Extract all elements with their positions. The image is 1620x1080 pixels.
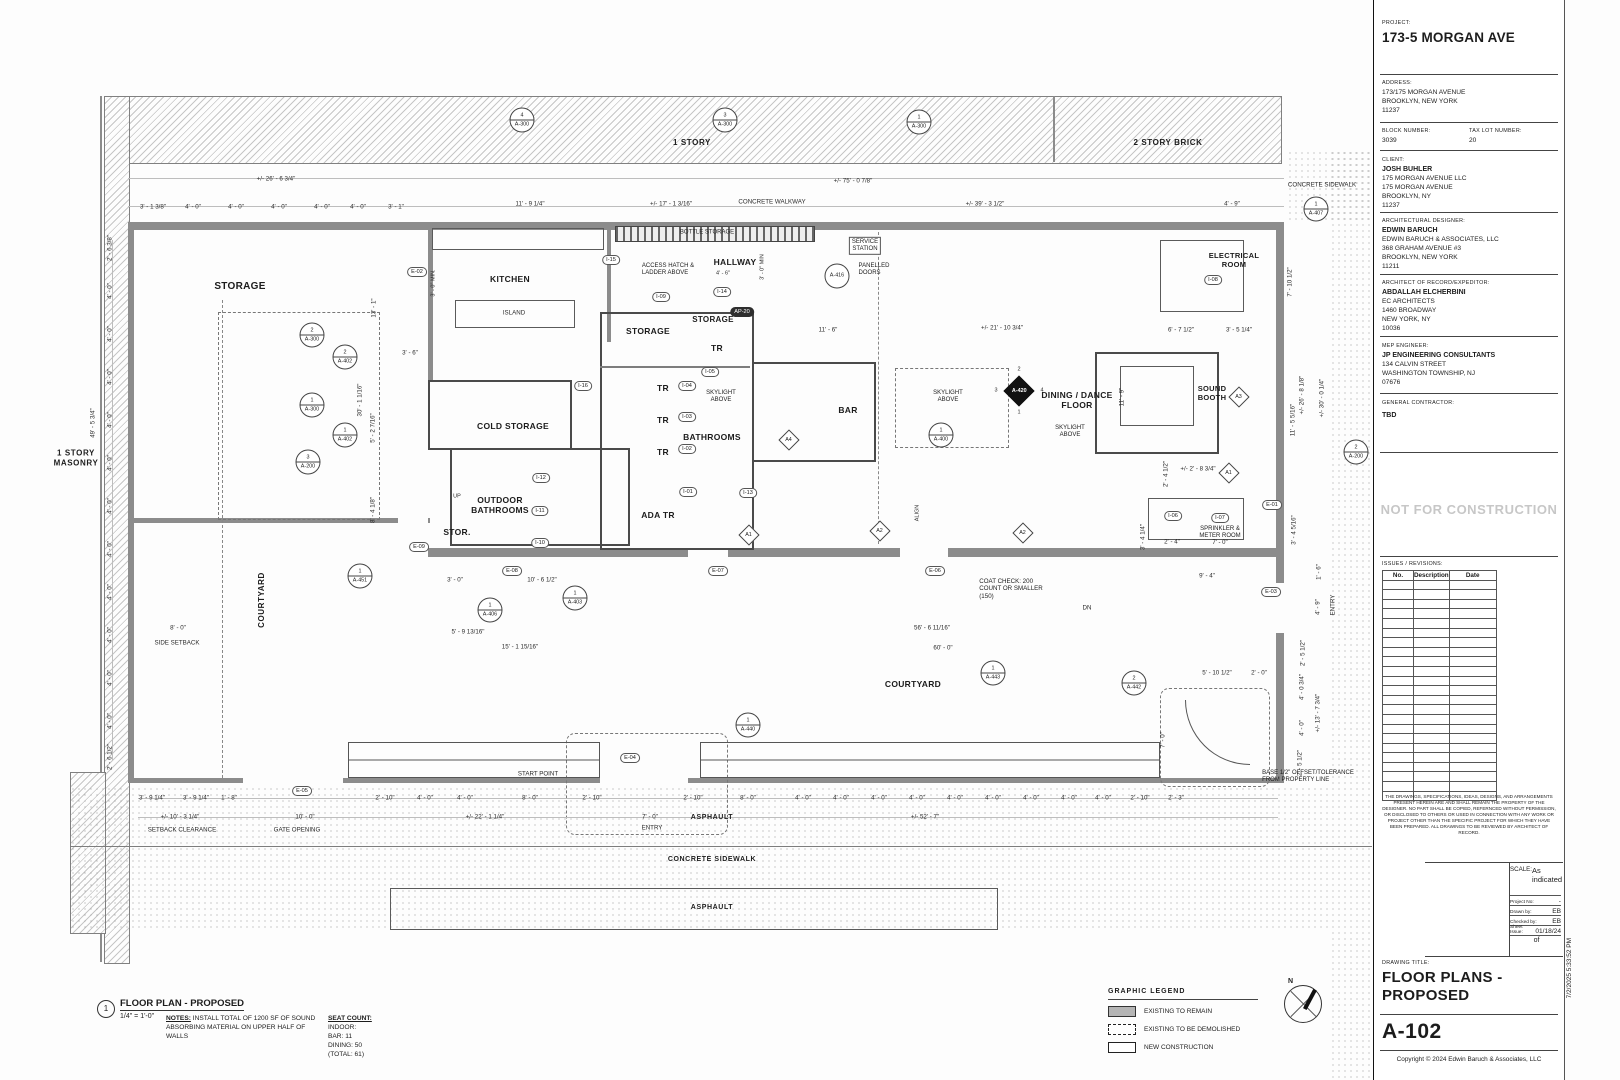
revision-cell — [1449, 590, 1496, 600]
item-tag: E-06 — [925, 566, 945, 576]
room-label: COLD STORAGE — [477, 421, 549, 431]
revision-cell — [1414, 618, 1450, 628]
dimension-label: 4' - 0" — [947, 794, 963, 801]
item-tag: E-01 — [1262, 500, 1282, 510]
dimension-label: +/- 13' - 7 3/4" — [1314, 694, 1321, 733]
dimension-label: 5' - 9 13/16" — [452, 628, 485, 635]
keynote-diamond: A3 — [1228, 386, 1249, 407]
dimension-label: 4' - 0" — [106, 326, 113, 342]
north-label: N — [1288, 978, 1293, 985]
marker-number: 1 — [908, 115, 931, 123]
revision-cell — [1449, 618, 1496, 628]
callout-marker: 1A-443 — [981, 661, 1006, 686]
rev-col-description: Description — [1414, 571, 1450, 581]
field-value: 01/18/24 — [1535, 928, 1561, 935]
room-label: OUTDOOR BATHROOMS — [471, 495, 529, 515]
item-tag: I-03 — [678, 412, 696, 422]
legend-item: EXISTING TO BE DEMOLISHED — [1108, 1024, 1258, 1035]
dimension-label: 5' - 10 1/2" — [1202, 669, 1232, 676]
revision-row-empty — [1383, 647, 1497, 657]
room-label: ADA TR — [641, 510, 675, 520]
keynote-diamond: A1 — [1218, 462, 1239, 483]
item-tag: E-08 — [502, 566, 522, 576]
revision-cell — [1414, 599, 1450, 609]
dimension-label: 4' - 0" — [106, 455, 113, 471]
revision-cell — [1383, 647, 1414, 657]
room-label: STORAGE — [626, 326, 670, 336]
item-tag: E-07 — [708, 566, 728, 576]
item-tag: I-01 — [679, 487, 697, 497]
callout-marker: 3A-200 — [296, 450, 321, 475]
revision-row-empty — [1383, 705, 1497, 715]
block-number-label: BLOCK NUMBER: — [1382, 128, 1462, 134]
of-label: of — [1510, 937, 1563, 944]
plot-timestamp: 7/2/2025 5:33:52 PM — [1566, 938, 1573, 998]
revision-cell — [1449, 676, 1496, 686]
dimension-label: 4' - 0" — [417, 794, 433, 801]
dimension-label: +/- 75' - 0 7/8" — [834, 177, 873, 184]
revision-row-empty — [1383, 676, 1497, 686]
client-details: 175 MORGAN AVENUE LLC 175 MORGAN AVENUE … — [1382, 175, 1556, 211]
revision-cell — [1449, 753, 1496, 763]
drawing-title: FLOOR PLANS - PROPOSED — [1382, 969, 1556, 1006]
annotation-note: SPRINKLER & METER ROOM 7' - 0" — [1199, 526, 1240, 548]
sound-booth-desk — [1120, 366, 1194, 426]
revision-cell — [1383, 734, 1414, 744]
plan-notes: NOTES: INSTALL TOTAL OF 1200 SF OF SOUND… — [166, 1015, 316, 1042]
revision-cell — [1414, 734, 1450, 744]
room-label: ELECTRICAL ROOM — [1209, 251, 1260, 269]
swatch-existing-to-remain — [1108, 1006, 1136, 1017]
legend-item-label: EXISTING TO REMAIN — [1144, 1008, 1212, 1015]
dimension-label: 3' - 9 1/4" — [183, 794, 209, 801]
item-tag: AP-20 — [730, 307, 754, 317]
gc-label: GENERAL CONTRACTOR: — [1382, 400, 1556, 406]
dimension-label: DN — [1083, 604, 1092, 611]
door-opening — [900, 546, 948, 560]
revision-cell — [1449, 724, 1496, 734]
dimension-label: 4' - 0" — [106, 627, 113, 643]
diamond-text: A1 — [1226, 470, 1233, 476]
dimension-label: 2' - 6 1/2" — [106, 744, 113, 770]
dimension-line — [128, 206, 1284, 207]
revision-row-empty — [1383, 609, 1497, 619]
designer-details: EDWIN BARUCH & ASSOCIATES, LLC 368 GRAHA… — [1382, 236, 1556, 272]
diamond-text: A2 — [1020, 530, 1027, 536]
callout-marker: 3A-300 — [713, 108, 738, 133]
marker-sheet-ref: A-440 — [737, 726, 760, 733]
revision-cell — [1449, 647, 1496, 657]
dimension-label: 4' - 0" — [1095, 794, 1111, 801]
revision-cell — [1414, 666, 1450, 676]
revision-cell — [1383, 666, 1414, 676]
dimension-label: 4' - 0" — [985, 794, 1001, 801]
marker-number: 4 — [511, 113, 534, 121]
site-label: ASPHAULT — [691, 904, 733, 912]
marker-number: 2 — [301, 328, 324, 336]
revision-cell — [1383, 676, 1414, 686]
revision-cell — [1449, 686, 1496, 696]
keynote-diamond: A2 — [1012, 522, 1033, 543]
room-label: TR — [711, 343, 723, 353]
dimension-label: 5' - 2 7/16" — [369, 413, 376, 443]
north-arrow-icon — [1284, 985, 1322, 1023]
callout-marker: A-416 — [825, 264, 850, 289]
site-label: COURTYARD — [257, 572, 267, 628]
view-number-bubble: 1 — [97, 1000, 115, 1018]
marker-number: 2 — [1345, 445, 1368, 453]
courtyard-storage-boxes — [700, 742, 1160, 778]
revision-cell — [1414, 580, 1450, 590]
revision-row-empty — [1383, 666, 1497, 676]
dimension-label: 6' - 7 1/2" — [1168, 326, 1194, 333]
callout-marker: 2A-442 — [1122, 671, 1147, 696]
marker-number: 1 — [301, 398, 324, 406]
revision-cell — [1383, 657, 1414, 667]
item-tag: I-13 — [739, 488, 757, 498]
dimension-label: 60' - 0" — [933, 644, 952, 651]
dimension-label: 11' - 9 1/4" — [515, 200, 544, 207]
item-tag: I-07 — [1211, 513, 1229, 523]
item-tag: I-14 — [713, 287, 731, 297]
marker-sheet-ref: A-442 — [1123, 684, 1146, 691]
dimension-label: 10' - 6 1/2" — [527, 576, 557, 583]
marker-sheet-ref: A-451 — [349, 577, 372, 584]
dimension-label: 3' - 1 3/8" — [140, 203, 166, 210]
dimension-label: 4' - 0" — [106, 369, 113, 385]
revisions-header-row: No. Description Date — [1383, 571, 1497, 581]
dimension-label: +/- 26' - 6 3/4" — [257, 175, 296, 182]
dimension-label: 4' - 0" — [833, 794, 849, 801]
dimension-label: 2' - 6 3/8" — [106, 235, 113, 261]
dimension-label: 4' - 0" — [314, 203, 330, 210]
callout-marker: 2A-402 — [333, 345, 358, 370]
divider — [1380, 336, 1558, 337]
revision-cell — [1383, 762, 1414, 772]
callout-marker: 1A-451 — [348, 564, 373, 589]
revision-cell — [1449, 628, 1496, 638]
item-tag: E-02 — [407, 267, 427, 277]
sheet-number: A-102 — [1382, 1020, 1556, 1044]
room-label: HALLWAY — [714, 257, 757, 267]
dimension-label: 2 — [1017, 367, 1020, 374]
dimension-label: 4' - 0" — [106, 541, 113, 557]
dimension-label: 2' - 0" — [1251, 669, 1267, 676]
room-label: BAR — [838, 405, 857, 415]
callout-marker: 1A-300 — [907, 110, 932, 135]
room-label: TR — [657, 447, 669, 457]
seat-count-body: INDOOR: BAR: 11 DINING: 50 (TOTAL: 61) — [328, 1024, 478, 1060]
revision-cell — [1414, 714, 1450, 724]
site-label: 1 STORY MASONRY — [54, 448, 99, 467]
seat-count-heading: SEAT COUNT: — [328, 1015, 372, 1022]
divider — [1380, 1014, 1558, 1015]
revision-cell — [1449, 762, 1496, 772]
room-label: STORAGE — [214, 281, 265, 293]
dimension-label: START POINT — [518, 770, 558, 777]
dimension-label: BOTTLE STORAGE — [680, 229, 734, 236]
revision-cell — [1449, 609, 1496, 619]
revision-cell — [1449, 599, 1496, 609]
diamond-text: A2 — [877, 528, 884, 534]
dimension-label: 4' - 0" — [795, 794, 811, 801]
dimension-label: +/- 22' - 1 1/4" — [466, 813, 505, 820]
marker-sheet-ref: A-200 — [1345, 453, 1368, 460]
dimension-label: 7' - 10 1/2" — [1286, 267, 1293, 297]
dimension-label: CONCRETE WALKWAY — [738, 198, 805, 205]
dimension-label: 15' - 1 15/16" — [502, 643, 538, 650]
revision-cell — [1449, 657, 1496, 667]
dimension-label: UP — [453, 494, 461, 501]
dimension-line — [128, 178, 1284, 179]
revision-cell — [1414, 772, 1450, 782]
marker-number: 1 — [334, 428, 357, 436]
dimension-label: 4' - 0" — [909, 794, 925, 801]
neighbor-building-north-hatch — [128, 96, 1282, 164]
site-label: 2 STORY BRICK — [1134, 138, 1203, 148]
item-tag: I-06 — [1164, 511, 1182, 521]
marker-sheet-ref: A-402 — [334, 436, 357, 443]
revision-row-empty — [1383, 618, 1497, 628]
dimension-label: 3' - 4 5/16" — [1290, 515, 1297, 545]
revision-cell — [1449, 772, 1496, 782]
revision-cell — [1383, 772, 1414, 782]
marker-sheet-ref: A-300 — [301, 336, 324, 343]
dimension-label: 3' - 5 1/4" — [1226, 326, 1252, 333]
room-label: DINING / DANCE FLOOR — [1041, 390, 1112, 410]
revision-row-empty — [1383, 724, 1497, 734]
dimension-label: 2' - 10" — [582, 794, 601, 801]
not-for-construction-watermark: NOT FOR CONSTRUCTION — [1374, 502, 1564, 517]
dimension-label: 8' - 0" — [522, 794, 538, 801]
dimension-label: 4' - 0" — [106, 584, 113, 600]
dimension-label: 10' - 0" — [295, 813, 314, 820]
annotation-note: COAT CHECK: 200 COUNT OR SMALLER (150) — [979, 578, 1043, 600]
revision-cell — [1383, 609, 1414, 619]
revision-cell — [1383, 743, 1414, 753]
dimension-label: SIDE SETBACK — [154, 639, 199, 646]
callout-marker: 1A-440 — [736, 713, 761, 738]
marker-sheet-ref: A-407 — [1305, 210, 1328, 217]
revision-row-empty — [1383, 590, 1497, 600]
legend-item-label: NEW CONSTRUCTION — [1144, 1044, 1213, 1051]
address-label: ADDRESS: — [1382, 80, 1556, 86]
scale-label: SCALE: — [1510, 863, 1532, 873]
item-tag: E-05 — [292, 786, 312, 796]
dimension-label: 3' - 9 1/4" — [139, 794, 165, 801]
item-tag: I-12 — [532, 473, 550, 483]
kitchen-counter — [432, 228, 604, 250]
dimension-label: 4' - 9" — [1314, 599, 1321, 615]
architect-name: ABDALLAH ELCHERBINI — [1382, 289, 1556, 296]
exterior-wall-east — [1276, 222, 1284, 583]
marker-sheet-ref: A-402 — [334, 358, 357, 365]
dimension-label: 4' - 0" — [106, 283, 113, 299]
marker-number: 2 — [334, 350, 357, 358]
marker-sheet-ref: A-300 — [908, 123, 931, 130]
swatch-new-construction — [1108, 1042, 1136, 1053]
dimension-label: 11' - 9" — [1118, 388, 1125, 407]
callout-marker: 1A-400 — [929, 423, 954, 448]
dimension-label: 4' - 0" — [106, 412, 113, 428]
divider — [1380, 452, 1558, 453]
revision-cell — [1383, 724, 1414, 734]
revisions-label: ISSUES / REVISIONS: — [1382, 561, 1556, 567]
room-label: BATHROOMS — [683, 432, 741, 442]
revision-row-empty — [1383, 686, 1497, 696]
revision-cell — [1414, 628, 1450, 638]
sidewalk-edge-line — [70, 846, 1372, 847]
courtyard-storage-boxes — [348, 742, 600, 778]
dimension-label: SETBACK CLEARANCE — [148, 826, 216, 833]
revision-row-empty — [1383, 714, 1497, 724]
callout-marker: 1A-402 — [333, 423, 358, 448]
revision-cell — [1383, 753, 1414, 763]
revision-cell — [1383, 686, 1414, 696]
dimension-label: 2' - 10" — [683, 794, 702, 801]
revision-cell — [1383, 599, 1414, 609]
marker-sheet-ref: A-443 — [982, 674, 1005, 681]
revision-row-empty — [1383, 599, 1497, 609]
field-value: EB — [1552, 918, 1561, 925]
dimension-label: 4' - 0" — [1023, 794, 1039, 801]
revision-row-empty — [1383, 772, 1497, 782]
mep-label: MEP ENGINEER: — [1382, 343, 1556, 349]
dimension-label: 4' - 0" — [271, 203, 287, 210]
dimension-label: 56' - 6 11/16" — [914, 624, 950, 631]
divider — [1380, 1050, 1558, 1051]
seat-count: SEAT COUNT: INDOOR: BAR: 11 DINING: 50 (… — [328, 1015, 478, 1059]
dimension-label: 4 — [1040, 388, 1043, 395]
dimension-label: 3' - 0" — [447, 576, 463, 583]
revision-cell — [1383, 638, 1414, 648]
dimension-label: 4' - 0" — [185, 203, 201, 210]
annotation-note: ACCESS HATCH & LADDER ABOVE — [642, 263, 694, 277]
marker-number: 1 — [930, 428, 953, 436]
dimension-label: 4' - 0" — [1298, 720, 1305, 736]
view-title: FLOOR PLAN - PROPOSED — [120, 998, 244, 1011]
dimension-label: 2' - 4 1/2" — [1162, 461, 1169, 487]
dimension-label: +/- 39' - 3 1/2" — [966, 200, 1005, 207]
marker-sheet-ref: A-406 — [479, 611, 502, 618]
marker-number: 1 — [982, 666, 1005, 674]
room-label: TR — [657, 415, 669, 425]
dimension-label: 1' - 8" — [221, 794, 237, 801]
dimension-label: 4' - 6" — [716, 271, 730, 278]
revision-cell — [1449, 782, 1496, 792]
dimension-label: 9' - 4" — [1199, 572, 1215, 579]
dimension-label: 4' - 9" — [1224, 200, 1240, 207]
dimension-label: +/- 30' - 0 1/4" — [1318, 379, 1325, 418]
dimension-label: 1' - 6" — [1315, 564, 1322, 580]
dimension-label: ALIGN — [915, 505, 922, 522]
dimension-label: 3' - 0" MIN — [760, 254, 767, 280]
divider — [1380, 150, 1558, 151]
dimension-label: 30' - 1 1/16" — [356, 384, 363, 417]
client-label: CLIENT: — [1382, 157, 1556, 163]
room-label: STOR. — [443, 527, 470, 537]
dimension-label: ISLAND — [503, 309, 525, 316]
divider — [1380, 74, 1558, 75]
dimension-label: 2' - 4" — [1164, 538, 1180, 545]
setback-line — [222, 300, 224, 778]
callout-marker: 1A-407 — [1304, 197, 1329, 222]
revision-row-empty — [1383, 782, 1497, 792]
dimension-label: 3' - 1" — [388, 203, 404, 210]
dimension-label: ENTRY — [642, 824, 663, 831]
dimension-label: 3' - 6" — [402, 349, 418, 356]
dimension-label: +/- 21' - 10 3/4" — [981, 324, 1023, 331]
rev-col-no: No. — [1383, 571, 1414, 581]
revision-cell — [1414, 753, 1450, 763]
field-value: EB — [1552, 908, 1561, 915]
item-tag: I-16 — [574, 381, 592, 391]
dimension-label: 4' - 0" — [350, 203, 366, 210]
architect-details: EC ARCHITECTS 1460 BROADWAY NEW YORK, NY… — [1382, 298, 1556, 334]
marker-sheet-ref: A-300 — [511, 121, 534, 128]
annotation-note: SERVICE STATION — [849, 237, 881, 255]
marker-number: 1 — [737, 718, 760, 726]
demolition-line — [878, 232, 880, 544]
revision-cell — [1414, 638, 1450, 648]
revision-cell — [1414, 762, 1450, 772]
callout-marker: 4A-300 — [510, 108, 535, 133]
neighbor-divider-wall — [1053, 96, 1055, 162]
dimension-label: 4' - 0" — [106, 498, 113, 514]
dimension-label: 11' - 5 5/16" — [1289, 404, 1296, 437]
dimension-label: 4' - 0" — [228, 203, 244, 210]
dimension-label: CONCRETE SIDEWALK — [1288, 181, 1356, 188]
diamond-text: A3 — [1236, 394, 1243, 400]
room-label: KITCHEN — [490, 274, 530, 284]
diamond-text: A4 — [786, 437, 793, 443]
item-tag: I-02 — [678, 444, 696, 454]
door-opening — [398, 516, 428, 526]
view-scale: 1/4" = 1'-0" — [120, 1013, 154, 1020]
dimension-label: +/- 10' - 3 1/4" — [161, 813, 200, 820]
revision-cell — [1414, 743, 1450, 753]
exterior-wall-east — [1276, 633, 1284, 780]
project-name: 173-5 MORGAN AVE — [1382, 30, 1556, 45]
legend-title: GRAPHIC LEGEND — [1108, 988, 1258, 1000]
revision-cell — [1414, 647, 1450, 657]
dimension-label: 4' - 0" — [871, 794, 887, 801]
legend-item-label: EXISTING TO BE DEMOLISHED — [1144, 1026, 1240, 1033]
revision-cell — [1383, 705, 1414, 715]
revision-cell — [1414, 695, 1450, 705]
title-block: PROJECT: 173-5 MORGAN AVE ADDRESS: 173/1… — [1373, 0, 1565, 1080]
notes-heading: NOTES: — [166, 1015, 191, 1022]
graphic-legend: GRAPHIC LEGEND EXISTING TO REMAIN EXISTI… — [1108, 988, 1258, 1060]
dimension-label: 7' - 0" — [642, 813, 658, 820]
callout-marker: 1A-300 — [300, 393, 325, 418]
dimension-label: 13' - 1" — [370, 298, 377, 317]
revision-cell — [1383, 628, 1414, 638]
divider — [1380, 274, 1558, 275]
item-tag: I-10 — [531, 538, 549, 548]
legend-item: EXISTING TO REMAIN — [1108, 1006, 1258, 1017]
revision-cell — [1449, 714, 1496, 724]
annotation-note: SKYLIGHT ABOVE — [1055, 425, 1085, 439]
revision-cell — [1449, 705, 1496, 715]
site-label: ASPHAULT — [691, 814, 733, 822]
dimension-label: +/- 17' - 1 3/16" — [650, 200, 692, 207]
marker-number: 1 — [479, 603, 502, 611]
revision-cell — [1383, 695, 1414, 705]
dimension-label: 8' - 4 1/8" — [369, 497, 376, 523]
item-tag: I-04 — [678, 381, 696, 391]
dimension-label: 11' - 6" — [819, 326, 838, 333]
